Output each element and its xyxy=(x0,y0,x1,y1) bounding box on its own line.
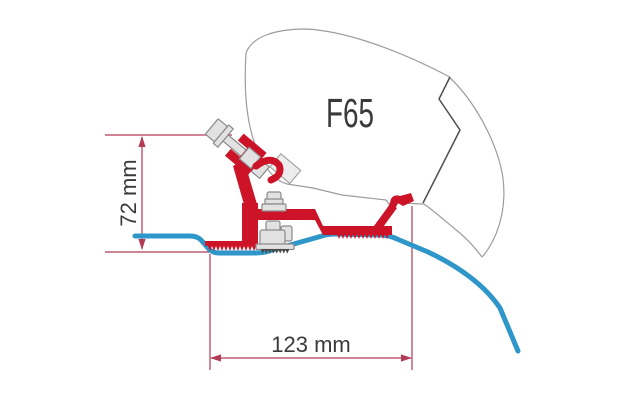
width-dimension-label: 123 mm xyxy=(271,332,350,357)
awning-outline xyxy=(245,29,504,257)
adapter-main-profile xyxy=(205,203,392,246)
awning-case-outline xyxy=(246,29,504,257)
arrow-up-icon xyxy=(138,136,145,147)
arrow-down-icon xyxy=(138,239,145,250)
diagram-canvas: F65 72 mm 123 mm xyxy=(0,0,640,400)
roof-bracket-lower xyxy=(256,221,294,254)
arrow-left-icon xyxy=(210,354,221,361)
adapter-rear-hook xyxy=(388,193,414,211)
roof-bolt-upper xyxy=(262,192,286,211)
arrow-right-icon xyxy=(401,354,412,361)
adapter-diagram: F65 72 mm 123 mm xyxy=(0,0,640,400)
awning-front-profile xyxy=(423,77,460,203)
height-dimension-label: 72 mm xyxy=(116,159,141,226)
product-label: F65 xyxy=(326,90,374,136)
